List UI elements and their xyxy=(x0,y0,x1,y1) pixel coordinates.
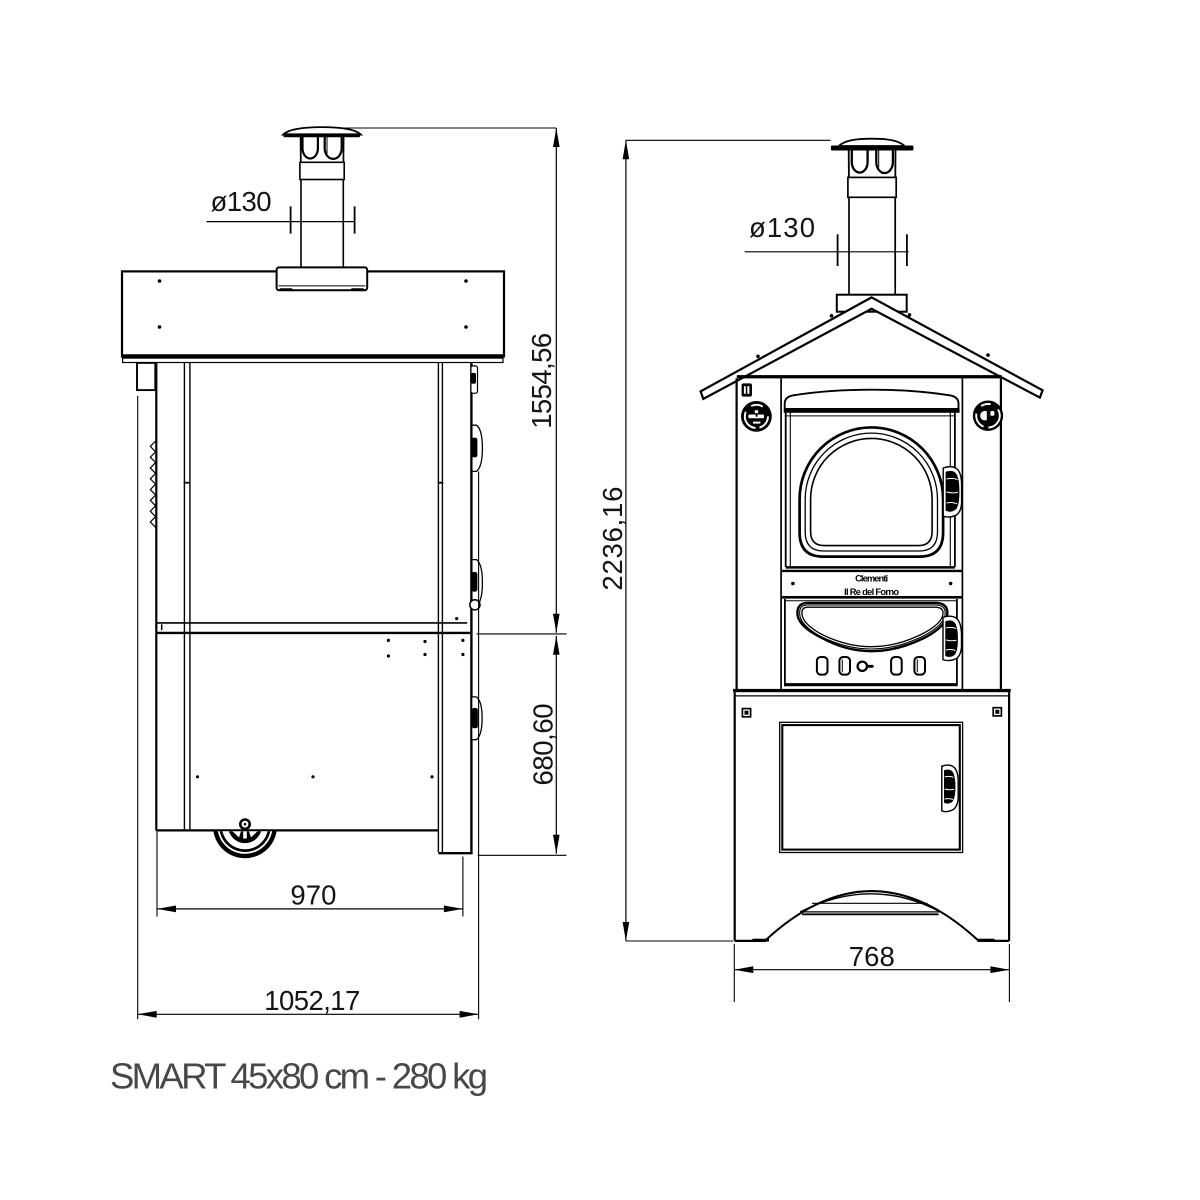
svg-text:768: 768 xyxy=(849,941,895,972)
svg-text:ø130: ø130 xyxy=(211,186,272,217)
svg-text:ø130: ø130 xyxy=(749,212,815,243)
svg-text:680,60: 680,60 xyxy=(528,704,559,786)
svg-text:Clementi: Clementi xyxy=(855,573,888,584)
svg-text:Il Re del Forno: Il Re del Forno xyxy=(844,586,899,597)
svg-text:1554,56: 1554,56 xyxy=(526,333,557,429)
svg-text:SMART 45x80 cm - 280 kg: SMART 45x80 cm - 280 kg xyxy=(110,1056,488,1097)
svg-text:970: 970 xyxy=(290,880,336,911)
svg-text:2236,16: 2236,16 xyxy=(597,487,628,591)
svg-text:1052,17: 1052,17 xyxy=(264,985,360,1016)
